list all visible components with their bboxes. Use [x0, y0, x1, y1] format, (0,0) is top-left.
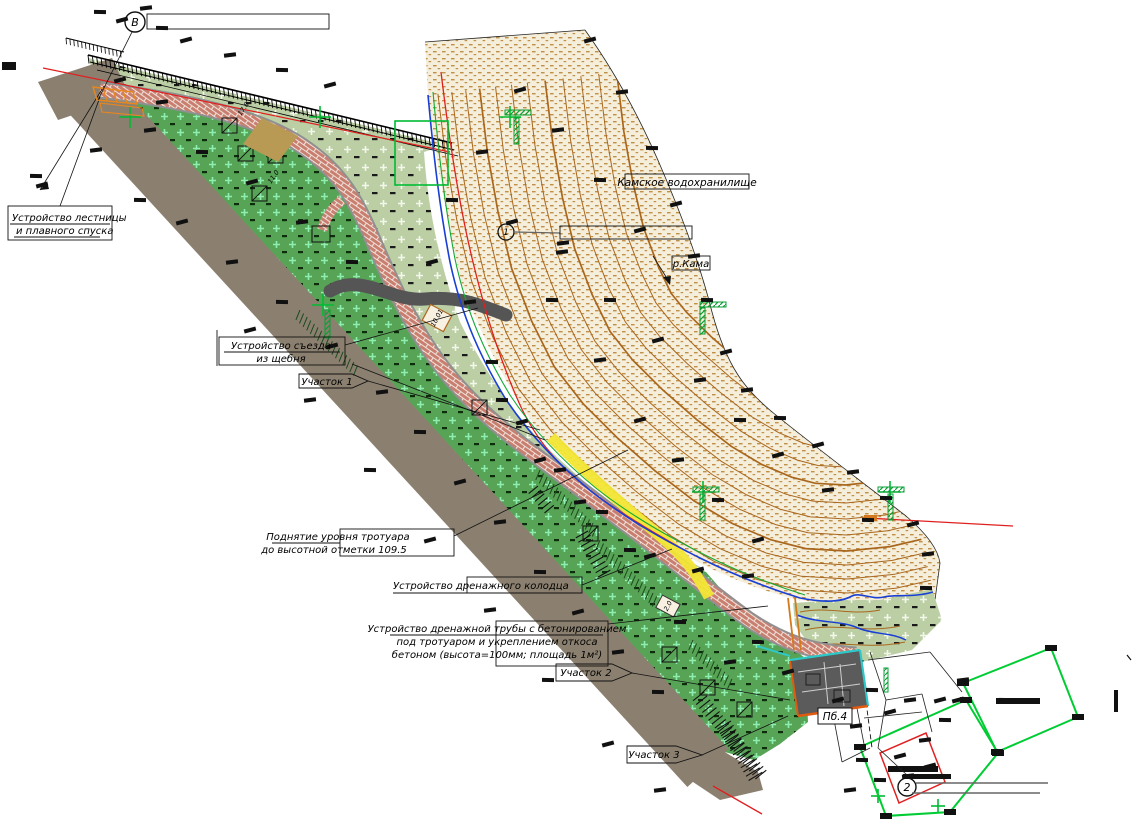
site-boundary-polygons [860, 648, 1078, 816]
callout-raise-line1: Поднятие уровня тротуара [266, 532, 409, 543]
building-footprint [790, 650, 868, 716]
site-plan-drawing: 7.59.211.017.8 10.01 2.0 Устройство лест… [0, 0, 1143, 825]
callout-gravel-line1: Устройство съезда [231, 341, 331, 352]
tick-right-edge [1127, 655, 1131, 660]
section-marker-bottom-number: 2 [904, 781, 911, 794]
section-title-box-top [147, 14, 329, 29]
label-reservoir-text: Камское водохранилище [617, 177, 756, 189]
callout-drain-pipe-line2: под тротуаром и укреплением откоса [397, 637, 598, 648]
label-reservoir: Камское водохранилище [617, 174, 756, 189]
section-marker-bottom: 2 [898, 778, 1048, 796]
label-plot1-text: Участок 1 [301, 377, 352, 388]
label-plot2-text: Участок 2 [560, 668, 611, 679]
section-marker-top-letter: В [131, 16, 139, 29]
site-plan-canvas: 7.59.211.017.8 10.01 2.0 Устройство лест… [0, 0, 1143, 825]
callout-stairs-line2: и плавного спуска [16, 226, 113, 237]
callout-drain-pipe-line1: Устройство дренажной трубы с бетонирован… [368, 623, 627, 635]
corner-block [2, 62, 16, 70]
label-plot3-text: Участок 3 [628, 750, 679, 761]
callout-gravel-line2: из щебня [256, 353, 305, 365]
callout-drain-well-text: Устройство дренажного колодца [393, 581, 569, 592]
callout-raise-line2: до высотной отметки 109.5 [260, 545, 407, 556]
label-building-text: Пб.4 [823, 711, 847, 723]
callout-drain-pipe-line3: бетоном (высота=100мм; площадь 1м²) [392, 649, 602, 661]
detail-marker-number: 1 [503, 228, 509, 238]
lone-bar-right [1114, 690, 1118, 712]
label-river-text: р.Кама [672, 259, 709, 270]
label-building: Пб.4 [818, 708, 852, 724]
callout-stairs-line1: Устройство лестницы [12, 213, 127, 224]
